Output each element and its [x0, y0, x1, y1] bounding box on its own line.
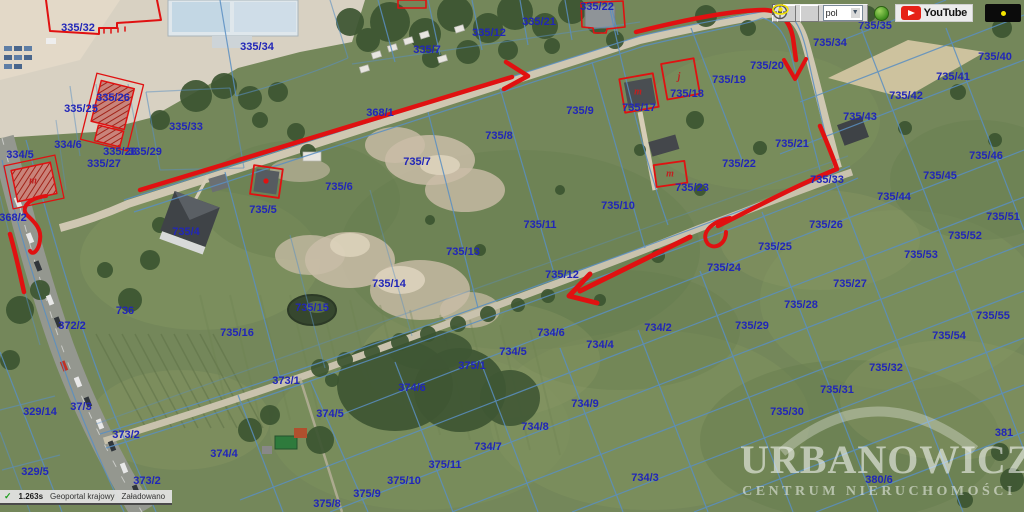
youtube-label: YouTube: [924, 7, 967, 19]
globe-button[interactable]: [874, 6, 889, 21]
youtube-play-icon: [901, 6, 921, 20]
map-source: Geoportal krajowy: [50, 492, 114, 501]
language-select[interactable]: pol ▼: [823, 5, 863, 21]
dot-icon: [1001, 11, 1006, 16]
youtube-button[interactable]: YouTube: [895, 4, 973, 22]
print-button[interactable]: [800, 5, 819, 22]
eye-icon: [772, 4, 789, 15]
visibility-panel-button[interactable]: [985, 4, 1021, 22]
check-icon: ✓: [4, 491, 12, 502]
geoportal-map-view[interactable]: 335/32335/34335/12335/7335/21335/22335/3…: [0, 0, 1024, 512]
aerial-map[interactable]: [0, 0, 1024, 512]
status-bar: ✓ 1.263s Geoportal krajowy Załadowano: [0, 490, 172, 505]
map-toolbar: pol ▼ YouTube: [772, 4, 1021, 22]
load-time: 1.263s: [19, 492, 43, 501]
chevron-down-icon: ▼: [851, 8, 860, 18]
load-state: Załadowano: [122, 492, 166, 501]
language-value: pol: [826, 8, 838, 18]
